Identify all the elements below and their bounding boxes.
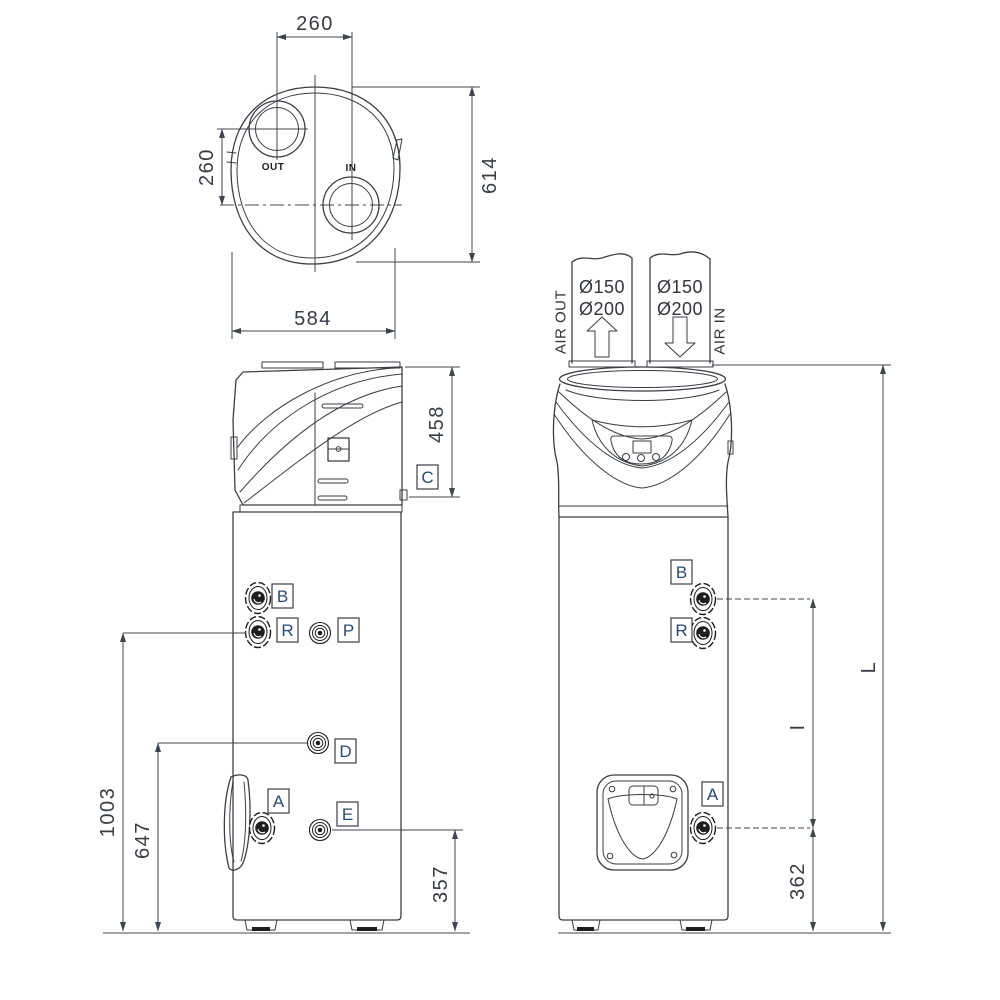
control-panel-display <box>633 441 651 453</box>
fitting-label-a: A <box>273 792 285 811</box>
head-right-clip <box>400 490 407 500</box>
foot-right-pad <box>357 927 377 931</box>
access-panel-outer <box>597 775 688 870</box>
heat-pump-head-front <box>553 384 733 517</box>
head-vent-slot-3 <box>318 496 347 500</box>
fitting-b-side <box>246 583 271 614</box>
fitting-label-r: R <box>281 621 293 640</box>
head-swoosh-2 <box>238 374 402 470</box>
dim-d-height: 647 <box>132 821 154 859</box>
access-panel-v-curve <box>608 799 677 859</box>
tank-feet-front <box>572 920 712 931</box>
air-out-duct-flange <box>569 361 635 367</box>
air-in-diameter-1: Ø150 <box>657 277 703 297</box>
air-flow-down-arrow-icon <box>665 317 695 357</box>
air-in-diameter-2: Ø200 <box>657 299 703 319</box>
fitting-r-side <box>246 617 271 648</box>
tank-feet-side <box>245 920 384 931</box>
head-outline-side <box>233 367 402 505</box>
out-port-label: OUT <box>262 162 285 173</box>
head-base-band <box>240 505 402 512</box>
foot-left-pad <box>252 927 270 931</box>
fitting-label-p: P <box>343 621 354 640</box>
control-panel-button-2 <box>638 455 645 462</box>
fitting-labels-side: B R P D A E C <box>268 465 438 826</box>
dim-total-height: L <box>858 661 880 674</box>
access-panel-screw-3 <box>607 853 613 859</box>
dim-depth-overall: 614 <box>479 156 501 194</box>
dim-port-spacing-v: 260 <box>196 148 218 186</box>
side-cover-outline <box>224 775 250 870</box>
heat-pump-water-heater-dimension-drawing: OUT IN 260 260 614 584 <box>0 0 1000 1000</box>
in-port-label: IN <box>346 163 357 174</box>
air-out-diameter-2: Ø200 <box>579 299 625 319</box>
air-in-duct: Ø150 Ø200 AIR IN <box>647 252 728 367</box>
access-panel-screw-2 <box>670 786 676 792</box>
head-band-arc-3 <box>554 414 730 488</box>
head-band-arc-1 <box>559 392 726 439</box>
side-view: B R P D A E C 458 1003 <box>97 362 470 933</box>
tank-body-front <box>559 517 728 920</box>
fitting-b-front <box>691 584 716 615</box>
dim-a-height: 362 <box>787 862 809 900</box>
fitting-label-c: C <box>421 468 433 487</box>
fitting-e-side <box>310 820 331 841</box>
tank-body-side <box>233 512 401 920</box>
in-port: IN <box>323 163 379 233</box>
top-view-seam-notch <box>393 139 402 160</box>
fitting-r-front <box>691 618 716 649</box>
heat-pump-head-side <box>231 362 407 512</box>
fitting-label-e: E <box>342 805 353 824</box>
fitting-label-b-front: B <box>676 563 687 582</box>
head-swoosh-3 <box>240 386 402 492</box>
air-out-diameter-1: Ø150 <box>579 277 625 297</box>
access-panel <box>597 775 688 870</box>
fitting-label-r-front: R <box>675 621 687 640</box>
access-panel-screw-4 <box>671 852 677 858</box>
air-out-label: AIR OUT <box>552 290 569 354</box>
head-rim-inner-ellipse <box>568 371 718 388</box>
foot-left-front-pad <box>577 927 594 931</box>
dim-head-height: 458 <box>426 405 448 443</box>
air-in-duct-flange <box>647 361 713 367</box>
access-panel-top-arc <box>608 795 677 800</box>
top-view-seam-left-1 <box>227 152 236 153</box>
air-flow-up-arrow-icon <box>587 317 617 357</box>
fitting-p-side <box>310 623 331 644</box>
dim-r-height: 1003 <box>97 787 119 838</box>
head-top-tab-left <box>262 362 323 368</box>
control-panel-button-1 <box>623 454 630 461</box>
fitting-label-d: D <box>339 742 351 761</box>
side-cover-edge-line <box>241 782 246 861</box>
fitting-a-side <box>250 813 275 844</box>
dimensional-drawing-page: OUT IN 260 260 614 584 <box>0 0 1000 1000</box>
dim-connection-span: I <box>787 723 809 730</box>
air-in-label: AIR IN <box>711 307 728 354</box>
top-view-seam-left-2 <box>227 162 236 163</box>
air-out-duct: Ø150 Ø200 AIR OUT <box>552 254 635 367</box>
control-panel-button-3 <box>653 454 660 461</box>
access-panel-screw-1 <box>609 786 615 792</box>
dim-width-overall: 584 <box>294 308 332 330</box>
dim-port-spacing-h: 260 <box>296 13 334 35</box>
side-cover-profile <box>224 775 250 870</box>
dim-e-height: 357 <box>430 865 452 903</box>
top-view: OUT IN 260 260 614 584 <box>196 13 501 339</box>
head-panel-recess <box>592 420 692 466</box>
head-silhouette-left <box>553 384 560 517</box>
fitting-d-side <box>308 733 329 754</box>
fitting-a-front <box>691 813 716 844</box>
fitting-label-b: B <box>277 587 288 606</box>
front-view: Ø150 Ø200 AIR OUT Ø150 Ø200 AIR IN <box>552 252 891 933</box>
head-swoosh-1 <box>237 368 395 448</box>
head-vent-slot-2 <box>318 479 348 483</box>
condensate-outlet-c <box>328 438 349 461</box>
foot-right-front-pad <box>686 927 705 931</box>
fitting-label-a-front: A <box>707 785 719 804</box>
